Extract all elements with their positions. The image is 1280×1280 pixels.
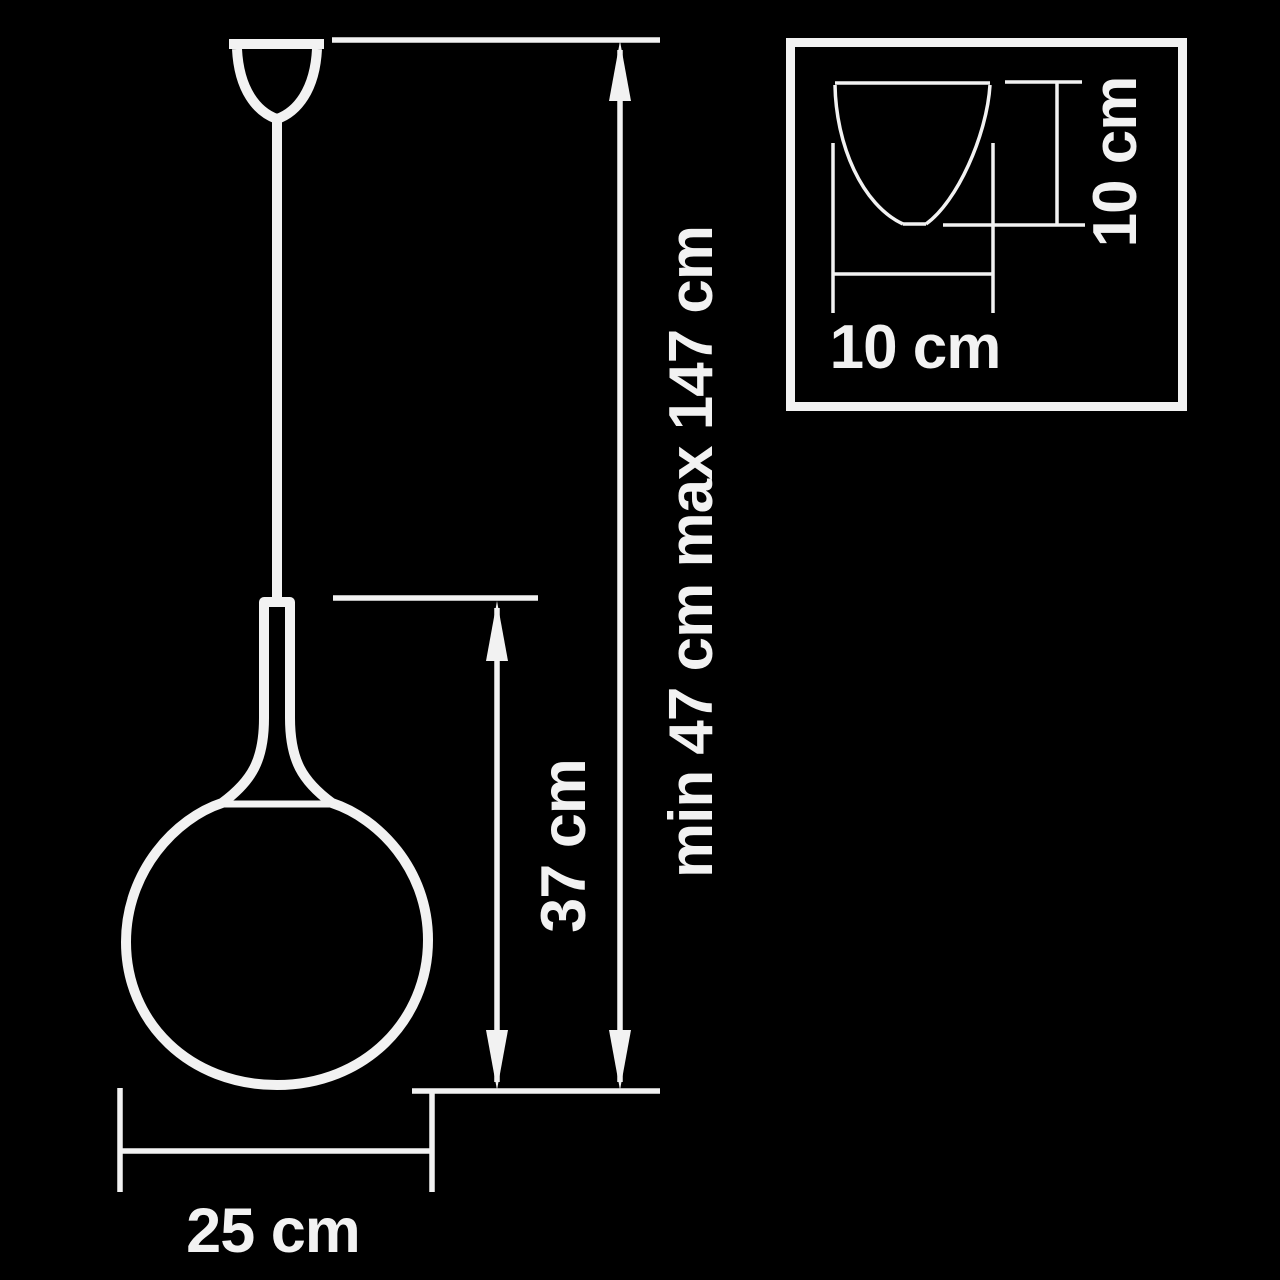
body-height-arrow-down-icon: [486, 1030, 508, 1090]
body-height-arrow-up-icon: [486, 601, 508, 661]
canopy-cup-outline: [237, 49, 317, 119]
inset-canopy-right-side: [926, 85, 990, 224]
inset-canopy-left-side: [835, 85, 903, 224]
overall-height-arrow-up-icon: [609, 41, 631, 101]
lamp-drawing: [126, 44, 428, 1085]
body-height-label: 37 cm: [529, 759, 599, 933]
overall-height-arrow-down-icon: [609, 1030, 631, 1090]
canopy-height-label: 10 cm: [1081, 77, 1150, 248]
lamp-body-outline: [126, 602, 428, 1085]
diagram-stage: 25 cm 37 cm min 47 cm max 147 cm 10 cm 1…: [0, 0, 1280, 1280]
shade-diameter-label: 25 cm: [186, 1196, 360, 1266]
overall-height-label: min 47 cm max 147 cm: [657, 226, 726, 878]
pendant-lamp-dimension-diagram: 25 cm 37 cm min 47 cm max 147 cm 10 cm 1…: [0, 0, 1280, 1280]
dimension-lines: [120, 40, 660, 1192]
canopy-width-label: 10 cm: [830, 313, 1001, 382]
